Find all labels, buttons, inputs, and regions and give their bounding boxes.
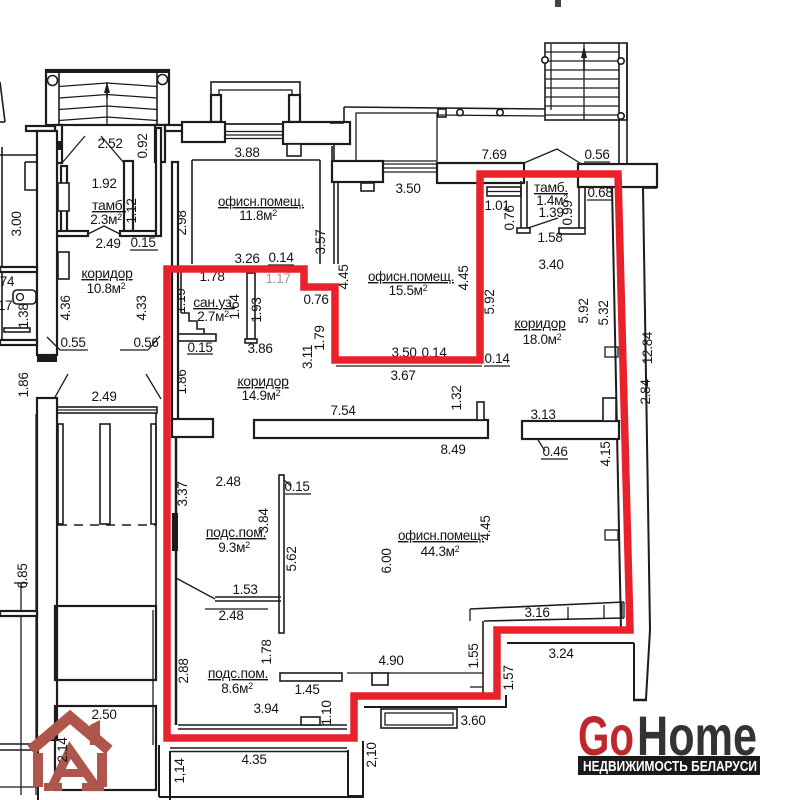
svg-text:3.13: 3.13 (530, 407, 555, 422)
svg-text:1.17: 1.17 (265, 271, 290, 286)
svg-text:1,14: 1,14 (172, 758, 187, 784)
svg-text:0.15: 0.15 (187, 340, 212, 355)
svg-text:3.94: 3.94 (253, 701, 279, 716)
svg-text:офисн.помещ.: офисн.помещ. (398, 527, 484, 543)
svg-text:2.48: 2.48 (215, 474, 240, 489)
svg-text:0.56: 0.56 (584, 147, 609, 162)
svg-text:2.48: 2.48 (218, 608, 243, 623)
svg-text:1.10: 1.10 (319, 700, 334, 725)
svg-text:7.54: 7.54 (330, 403, 356, 418)
svg-text:0.76: 0.76 (303, 292, 328, 307)
svg-text:44.3м2: 44.3м2 (421, 544, 460, 559)
svg-text:1.79: 1.79 (312, 325, 327, 350)
svg-text:1.57: 1.57 (501, 665, 516, 690)
svg-text:2.84: 2.84 (638, 379, 653, 405)
svg-text:3.60: 3.60 (460, 713, 485, 728)
svg-text:тамб.: тамб. (92, 197, 126, 213)
svg-text:5.92: 5.92 (482, 289, 497, 314)
svg-text:3.16: 3.16 (524, 605, 549, 620)
svg-text:1.45: 1.45 (294, 682, 319, 697)
svg-text:подс.пом.: подс.пом. (208, 665, 268, 681)
svg-text:3.57: 3.57 (313, 229, 328, 254)
svg-text:0.92: 0.92 (135, 133, 150, 158)
svg-text:0.55: 0.55 (60, 335, 85, 350)
svg-text:15.5м2: 15.5м2 (389, 283, 428, 298)
svg-text:4.33: 4.33 (134, 295, 149, 320)
svg-text:офисн.помещ.: офисн.помещ. (218, 193, 304, 209)
svg-text:17: 17 (0, 298, 12, 313)
svg-text:3.84: 3.84 (256, 508, 271, 534)
svg-text:0.15: 0.15 (130, 235, 155, 250)
svg-text:3.50: 3.50 (395, 181, 420, 196)
svg-text:1.64: 1.64 (227, 294, 242, 320)
svg-text:0.46: 0.46 (542, 444, 567, 459)
svg-text:11.8м2: 11.8м2 (239, 208, 277, 223)
svg-text:1.12: 1.12 (124, 198, 139, 223)
svg-text:0.15: 0.15 (284, 479, 309, 494)
svg-text:3.67: 3.67 (390, 368, 415, 383)
svg-text:0.68: 0.68 (587, 185, 612, 200)
svg-text:3.88: 3.88 (234, 145, 259, 160)
svg-text:0.76: 0.76 (502, 205, 517, 230)
svg-text:5.92: 5.92 (576, 298, 591, 323)
svg-text:1.58: 1.58 (537, 230, 562, 245)
svg-text:1.78: 1.78 (259, 639, 274, 664)
svg-text:2.52: 2.52 (97, 136, 122, 151)
svg-text:2,10: 2,10 (364, 742, 379, 767)
svg-text:0.14: 0.14 (268, 250, 294, 265)
svg-text:2.14: 2.14 (55, 737, 70, 763)
svg-text:2.50: 2.50 (91, 707, 116, 722)
svg-text:1.55: 1.55 (466, 643, 481, 668)
svg-text:74: 74 (0, 274, 15, 289)
svg-text:3.00: 3.00 (9, 211, 24, 236)
svg-text:НЕДВИЖИМОСТЬ БЕЛАРУСИ: НЕДВИЖИМОСТЬ БЕЛАРУСИ (583, 759, 757, 775)
svg-text:8.49: 8.49 (440, 442, 465, 457)
svg-text:3.40: 3.40 (538, 257, 563, 272)
svg-text:коридор: коридор (514, 315, 566, 331)
svg-text:6.85: 6.85 (15, 563, 30, 588)
svg-text:1.32: 1.32 (449, 385, 464, 410)
svg-text:3.86: 3.86 (247, 341, 272, 356)
svg-text:4.45: 4.45 (456, 265, 471, 290)
svg-text:3.24: 3.24 (548, 646, 574, 661)
svg-text:2.49: 2.49 (91, 389, 116, 404)
svg-text:1.86: 1.86 (16, 372, 31, 397)
svg-text:1.38: 1.38 (16, 303, 31, 328)
svg-text:4.36: 4.36 (58, 295, 73, 320)
svg-text:0.99: 0.99 (560, 200, 575, 225)
svg-text:14.9м2: 14.9м2 (242, 388, 281, 403)
svg-text:5.62: 5.62 (284, 546, 299, 571)
svg-text:4.90: 4.90 (378, 653, 403, 668)
svg-text:6.00: 6.00 (379, 548, 394, 573)
svg-text:коридор: коридор (81, 265, 133, 281)
svg-text:0.14: 0.14 (484, 351, 510, 366)
svg-text:12.84: 12.84 (640, 331, 655, 364)
svg-text:3.26: 3.26 (234, 251, 259, 266)
svg-text:5.32: 5.32 (596, 300, 611, 325)
svg-text:4.35: 4.35 (241, 752, 266, 767)
svg-text:4.15: 4.15 (598, 441, 613, 466)
svg-text:офисн.помещ.: офисн.помещ. (368, 268, 454, 284)
svg-text:3.37: 3.37 (175, 481, 190, 506)
svg-text:2.88: 2.88 (176, 658, 191, 683)
svg-text:коридор: коридор (237, 373, 289, 389)
svg-text:7.69: 7.69 (481, 147, 506, 162)
svg-text:18.0м2: 18.0м2 (523, 332, 562, 347)
svg-text:1.93: 1.93 (249, 297, 264, 322)
svg-text:10.8м2: 10.8м2 (87, 281, 126, 296)
svg-text:4.45: 4.45 (478, 515, 493, 540)
svg-text:2.49: 2.49 (95, 236, 120, 251)
svg-text:1.92: 1.92 (91, 176, 116, 191)
svg-text:1.53: 1.53 (232, 582, 257, 597)
